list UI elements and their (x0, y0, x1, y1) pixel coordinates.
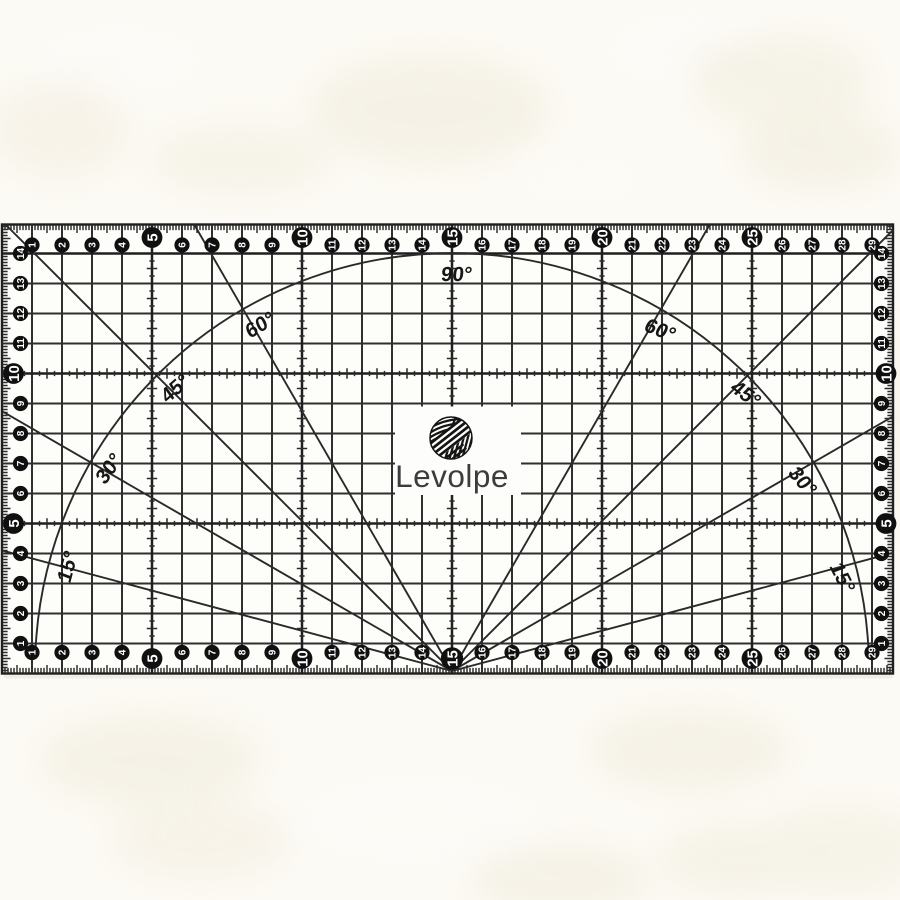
svg-text:2: 2 (58, 242, 69, 248)
svg-text:11: 11 (16, 338, 27, 349)
svg-text:11: 11 (328, 239, 339, 250)
svg-text:22: 22 (658, 239, 669, 251)
svg-text:16: 16 (478, 647, 489, 659)
svg-text:10: 10 (879, 365, 895, 382)
svg-text:8: 8 (877, 430, 888, 436)
svg-text:1: 1 (28, 649, 39, 655)
svg-text:1: 1 (16, 640, 27, 646)
svg-text:5: 5 (7, 519, 23, 527)
svg-text:4: 4 (118, 242, 129, 248)
svg-text:24: 24 (718, 647, 729, 659)
svg-text:14: 14 (877, 248, 888, 260)
svg-text:8: 8 (16, 430, 27, 436)
svg-text:9: 9 (877, 400, 888, 406)
svg-text:3: 3 (88, 649, 99, 655)
svg-text:5: 5 (145, 654, 161, 662)
svg-text:6: 6 (877, 490, 888, 496)
svg-text:7: 7 (208, 242, 219, 248)
svg-text:21: 21 (628, 239, 639, 251)
svg-text:15: 15 (445, 229, 461, 246)
svg-text:19: 19 (568, 239, 579, 251)
svg-text:Levolpe: Levolpe (395, 458, 509, 494)
svg-text:18: 18 (538, 239, 549, 251)
svg-text:21: 21 (628, 647, 639, 659)
svg-text:6: 6 (178, 242, 189, 248)
svg-text:12: 12 (16, 308, 27, 320)
svg-text:10: 10 (7, 365, 23, 382)
svg-text:18: 18 (538, 647, 549, 659)
svg-text:14: 14 (16, 248, 27, 260)
svg-text:9: 9 (268, 242, 279, 248)
svg-text:7: 7 (877, 460, 888, 466)
svg-text:6: 6 (178, 649, 189, 655)
svg-text:8: 8 (238, 242, 249, 248)
svg-text:4: 4 (877, 550, 888, 556)
svg-text:20: 20 (595, 229, 611, 246)
svg-text:28: 28 (838, 647, 849, 659)
svg-text:26: 26 (778, 239, 789, 251)
svg-text:12: 12 (358, 239, 369, 251)
svg-text:9: 9 (16, 400, 27, 406)
svg-text:1: 1 (877, 640, 888, 646)
svg-text:25: 25 (745, 229, 761, 246)
svg-text:23: 23 (688, 647, 699, 659)
svg-text:13: 13 (16, 278, 27, 290)
svg-text:7: 7 (208, 649, 219, 655)
svg-text:12: 12 (877, 308, 888, 320)
svg-text:6: 6 (16, 490, 27, 496)
svg-text:28: 28 (838, 239, 849, 251)
svg-text:3: 3 (88, 242, 99, 248)
svg-text:4: 4 (118, 649, 129, 655)
svg-text:24: 24 (718, 239, 729, 251)
svg-text:2: 2 (58, 649, 69, 655)
svg-text:27: 27 (808, 647, 819, 659)
svg-text:22: 22 (658, 647, 669, 659)
svg-text:25: 25 (745, 650, 761, 667)
svg-text:9: 9 (268, 649, 279, 655)
svg-text:15: 15 (445, 650, 461, 667)
svg-text:17: 17 (508, 239, 519, 251)
svg-text:1: 1 (28, 242, 39, 248)
svg-text:27: 27 (808, 239, 819, 251)
svg-text:8: 8 (238, 649, 249, 655)
svg-text:19: 19 (568, 647, 579, 659)
svg-text:2: 2 (16, 610, 27, 616)
svg-text:13: 13 (388, 647, 399, 659)
svg-text:20: 20 (595, 650, 611, 667)
svg-text:11: 11 (877, 338, 888, 349)
svg-text:3: 3 (877, 580, 888, 586)
svg-text:17: 17 (508, 647, 519, 659)
svg-text:13: 13 (877, 278, 888, 290)
svg-text:23: 23 (688, 239, 699, 251)
svg-text:14: 14 (418, 647, 429, 659)
svg-text:7: 7 (16, 460, 27, 466)
svg-text:14: 14 (418, 239, 429, 251)
svg-text:4: 4 (16, 550, 27, 556)
svg-text:13: 13 (388, 239, 399, 251)
svg-text:26: 26 (778, 647, 789, 659)
svg-text:10: 10 (295, 650, 311, 667)
svg-text:10: 10 (295, 229, 311, 246)
svg-text:12: 12 (358, 647, 369, 659)
svg-text:11: 11 (328, 647, 339, 658)
svg-text:2: 2 (877, 610, 888, 616)
svg-text:5: 5 (879, 519, 895, 527)
svg-text:90°: 90° (440, 263, 473, 286)
svg-text:5: 5 (145, 233, 161, 241)
svg-text:3: 3 (16, 580, 27, 586)
svg-text:16: 16 (478, 239, 489, 251)
